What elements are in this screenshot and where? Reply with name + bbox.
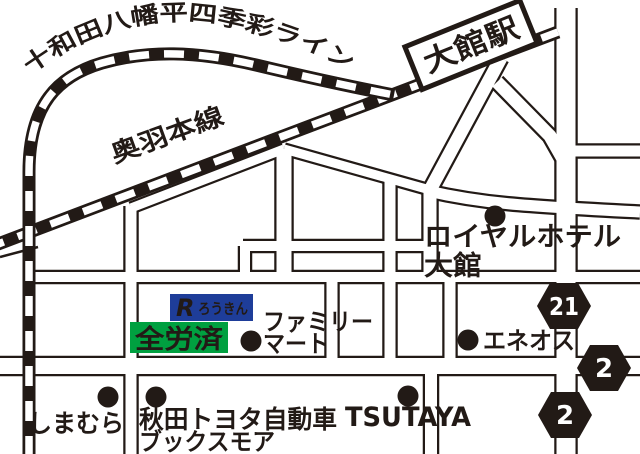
route-badge-21: 21 xyxy=(537,283,591,329)
map-canvas: 大館駅 十和田八幡平四季彩ライン 奥羽本線 ロイヤルホテル 大館 エネオス ファ… xyxy=(0,0,640,454)
eneos-marker-dot xyxy=(458,330,479,351)
shimamura-label: しまむら xyxy=(28,409,124,438)
rokin-logo-label: ろうきん xyxy=(198,301,248,318)
family-mart-marker-dot xyxy=(241,331,262,352)
station-area-map: 大館駅 十和田八幡平四季彩ライン 奥羽本線 ロイヤルホテル 大館 エネオス ファ… xyxy=(0,0,640,454)
tsutaya-label: TSUTAYA xyxy=(345,402,471,433)
royal-hotel-label-line1: ロイヤルホテル xyxy=(424,222,621,253)
route-badge-2-east-number: 2 xyxy=(595,354,613,384)
route-badge-2-south: 2 xyxy=(538,392,592,438)
royal-hotel-label-line2: 大館 xyxy=(424,250,482,282)
shimamura-marker-dot xyxy=(98,387,119,408)
akita-toyota-label-line2: ブックスモア xyxy=(139,428,275,454)
rokin-logo-mark: R xyxy=(176,294,194,322)
family-mart-label-line2: マート xyxy=(263,330,329,358)
route-badge-21-number: 21 xyxy=(549,292,579,321)
zenrosai-logo: 全労済 xyxy=(130,322,228,355)
eneos-label: エネオス xyxy=(483,327,575,355)
rokin-logo: R ろうきん xyxy=(170,294,253,322)
route-badge-2-south-number: 2 xyxy=(556,401,574,431)
station-sign: 大館駅 xyxy=(405,0,537,89)
zenrosai-logo-label: 全労済 xyxy=(134,324,224,355)
route-badge-2-east: 2 xyxy=(577,345,631,391)
towada-line-label: 十和田八幡平四季彩ライン xyxy=(19,0,359,79)
